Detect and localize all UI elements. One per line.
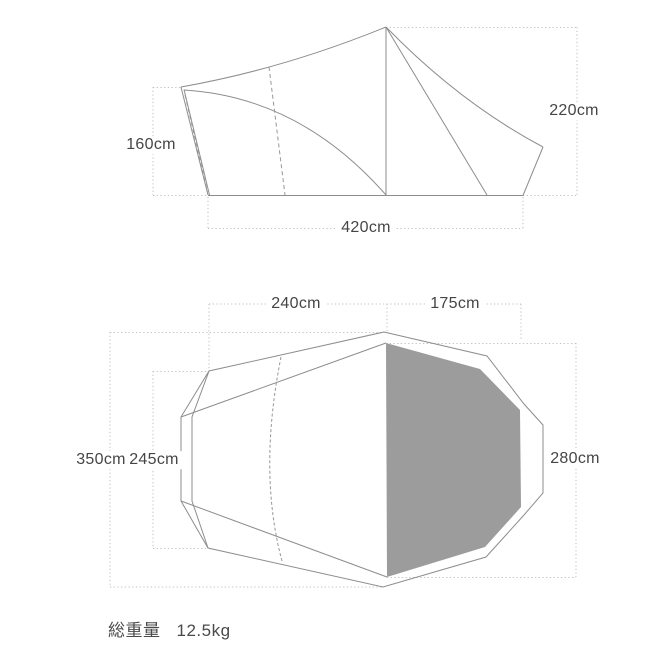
side-view-guides (153, 27, 577, 229)
ridge-curve (181, 27, 386, 87)
top-length-inner-label: 245cm (125, 451, 183, 469)
side-view-internal-poles (185, 67, 285, 195)
top-width-left-label: 240cm (267, 295, 325, 313)
tail-edge (523, 147, 543, 196)
inner-tent-arc (270, 357, 282, 561)
side-view-drawing (181, 27, 543, 196)
tent-dimension-diagram: 160cm 220cm 420cm 240cm 175cm 350cm 245c… (0, 0, 650, 650)
total-weight-value: 12.5kg (177, 621, 231, 640)
front-panel-curve (184, 90, 386, 195)
door-panel (386, 343, 521, 577)
side-height-left-label: 160cm (122, 136, 180, 154)
top-view-inner-arc-group (270, 357, 282, 561)
rear-inner-slope (386, 27, 487, 195)
lower-ridge-diagonal (181, 501, 387, 577)
top-length-outer-label: 350cm (72, 451, 130, 469)
total-weight-label: 総重量 (108, 621, 161, 640)
side-height-right-label: 220cm (545, 102, 603, 120)
total-weight: 総重量12.5kg (108, 616, 231, 641)
inner-left-outline (192, 371, 209, 548)
top-width-right-label: 175cm (426, 295, 484, 313)
side-width-label: 420cm (337, 219, 395, 237)
internal-pole-dashed (269, 67, 285, 195)
rear-panel-curve (386, 27, 543, 147)
front-pole-dashed (185, 95, 208, 192)
top-height-right-label: 280cm (546, 450, 604, 468)
diagram-linework (0, 0, 650, 650)
